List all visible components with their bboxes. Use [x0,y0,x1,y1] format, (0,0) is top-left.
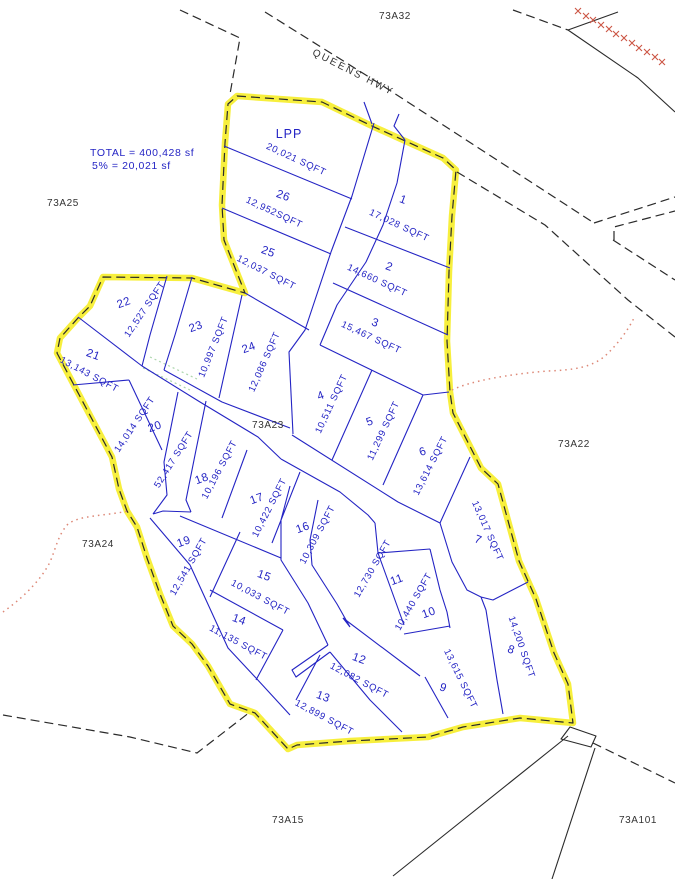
fence-x-markers [575,8,665,65]
lot-area-18: 10,196 SQFT [200,439,240,501]
lot-number-17: 17 [248,491,265,507]
adjacent-parcel-label-s: 73A15 [272,815,304,826]
lot-number-6: 6 [418,445,429,459]
lot-number-21: 21 [84,347,101,363]
lot-number-10: 10 [420,605,437,621]
lot-number-1: 1 [398,193,409,207]
lot-number-4: 4 [316,389,327,403]
lot-area-lpp: 20,021 SQFT [264,141,327,178]
lot-number-19: 19 [175,534,192,550]
plat-map-canvas: LPP 20,021 SQFT 1 17,028 SQFT 2 14,660 S… [0,0,675,879]
lot-area-6: 13,614 SQFT [411,435,450,498]
adjacent-boundary-dashed-sw [3,712,250,753]
lot-area-22: 12,527 SQFT [122,280,167,340]
plat-map-drawing: LPP 20,021 SQFT 1 17,028 SQFT 2 14,660 S… [0,0,675,879]
road-line-solid-s1 [393,736,568,876]
adjacent-parcel-label-nw: 73A25 [47,198,79,209]
lot-area-16: 10,309 SQFT [298,504,338,566]
adjacent-parcel-label-n: 73A32 [379,11,411,22]
lot-number-2: 2 [384,260,395,274]
lot-number-14: 14 [230,612,247,628]
lot-area-14: 11,135 SQFT [207,623,269,663]
lot-area-12: 12,082 SQFT [328,661,390,701]
lot-number-25: 25 [259,244,276,260]
red-dotted-line-east [452,318,634,390]
summary-percent: 5% = 20,021 sf [92,160,171,172]
adjacent-parcel-line-e [613,240,675,280]
lot-number-23: 23 [187,319,204,335]
branch-road-lower-edge [614,211,675,240]
adjacent-parcel-label-w: 73A24 [82,539,114,550]
adjacent-boundary-dashed-se [593,743,675,783]
lot-area-11: 12,730 SQFT [352,538,394,600]
fence-line-solid-ne [568,12,675,112]
lot-number-5: 5 [365,415,376,429]
road-line-solid-s2 [552,748,595,879]
road-label-queens-hwy: QUEENS HWY [310,47,395,98]
lot-area-17: 10,422 SQFT [250,477,289,540]
lot-number-11: 11 [389,572,405,588]
adjacent-boundary-dashed-nw [180,10,240,94]
queens-hwy-north-edge [265,12,594,223]
adjacent-parcel-label-e: 73A22 [558,439,590,450]
lot-number-15: 15 [255,568,272,584]
lot-number-24: 24 [240,340,257,356]
adjacent-parcel-label-se: 73A101 [619,815,657,826]
lot-number-26: 26 [274,188,291,204]
branch-road-upper-edge [594,197,675,223]
lot-number-lpp: LPP [276,127,303,141]
lot-area-26: 12,952SQFT [244,195,304,231]
lot-number-12: 12 [350,651,367,667]
summary-total: TOTAL = 400,428 sf [90,147,194,159]
lot-number-7: 7 [473,533,484,547]
lot-area-9: 13,615 SQFT [441,647,479,710]
lot-area-4: 10,511 SQFT [313,373,350,436]
fence-line-dashed-ne [513,10,568,30]
adjacent-parcel-label-center: 73A23 [252,420,284,431]
lot-number-13: 13 [314,689,331,705]
lot-area-7: 13,017 SQFT [469,499,505,563]
lot-number-22: 22 [115,295,132,311]
lot-lines-central [210,435,440,700]
queens-hwy-south-edge [457,172,675,337]
lot-area-2: 14,660 SQFT [345,262,408,299]
road-area-label: 52,417 SQFT [152,429,196,490]
lot-number-3: 3 [370,316,381,330]
red-dotted-line-west [3,511,128,612]
lot-number-16: 16 [294,520,311,536]
lot-number-9: 9 [438,681,449,695]
lot-number-8: 8 [506,643,517,657]
lot-area-15: 10,033 SQFT [229,578,291,618]
